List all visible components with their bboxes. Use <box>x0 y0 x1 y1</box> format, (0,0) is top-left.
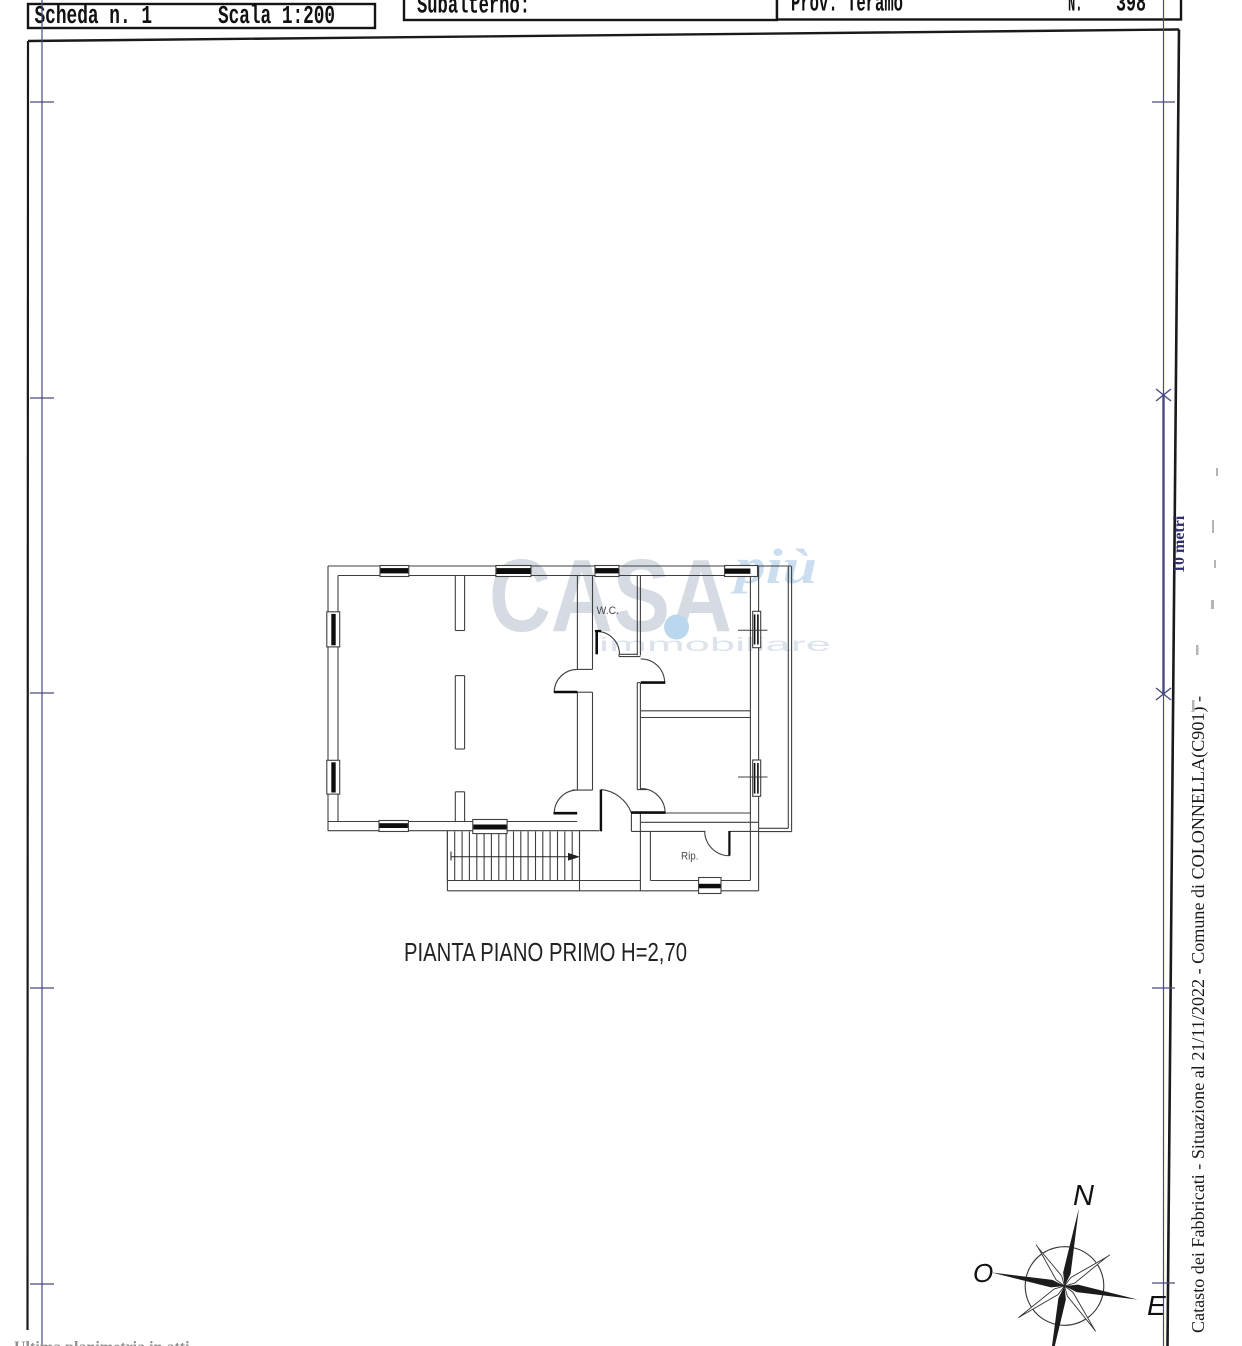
svg-text:398: 398 <box>1116 0 1146 18</box>
svg-text:W.C.: W.C. <box>597 605 620 617</box>
svg-text:10 metri: 10 metri <box>1171 515 1188 573</box>
svg-text:Rip.: Rip. <box>681 851 699 863</box>
svg-text:Subalterno:: Subalterno: <box>417 0 530 20</box>
svg-text:E: E <box>1147 1290 1166 1321</box>
svg-text:PIANTA PIANO PRIMO H=2,70: PIANTA PIANO PRIMO H=2,70 <box>404 939 687 967</box>
svg-text:N: N <box>1073 1180 1094 1212</box>
svg-text:Scala 1:200: Scala 1:200 <box>218 2 335 31</box>
svg-text:N.: N. <box>1068 0 1083 18</box>
svg-text:immobiliare: immobiliare <box>599 635 831 656</box>
svg-text:Scheda n. 1: Scheda n. 1 <box>35 2 153 31</box>
svg-text:Catasto dei Fabbricati - Situa: Catasto dei Fabbricati - Situazione al 2… <box>1188 696 1209 1333</box>
svg-text:Prov. Teramo: Prov. Teramo <box>791 0 903 18</box>
svg-text:O: O <box>973 1258 993 1288</box>
svg-text:Ultima planimetria in atti: Ultima planimetria in atti <box>14 1339 190 1346</box>
